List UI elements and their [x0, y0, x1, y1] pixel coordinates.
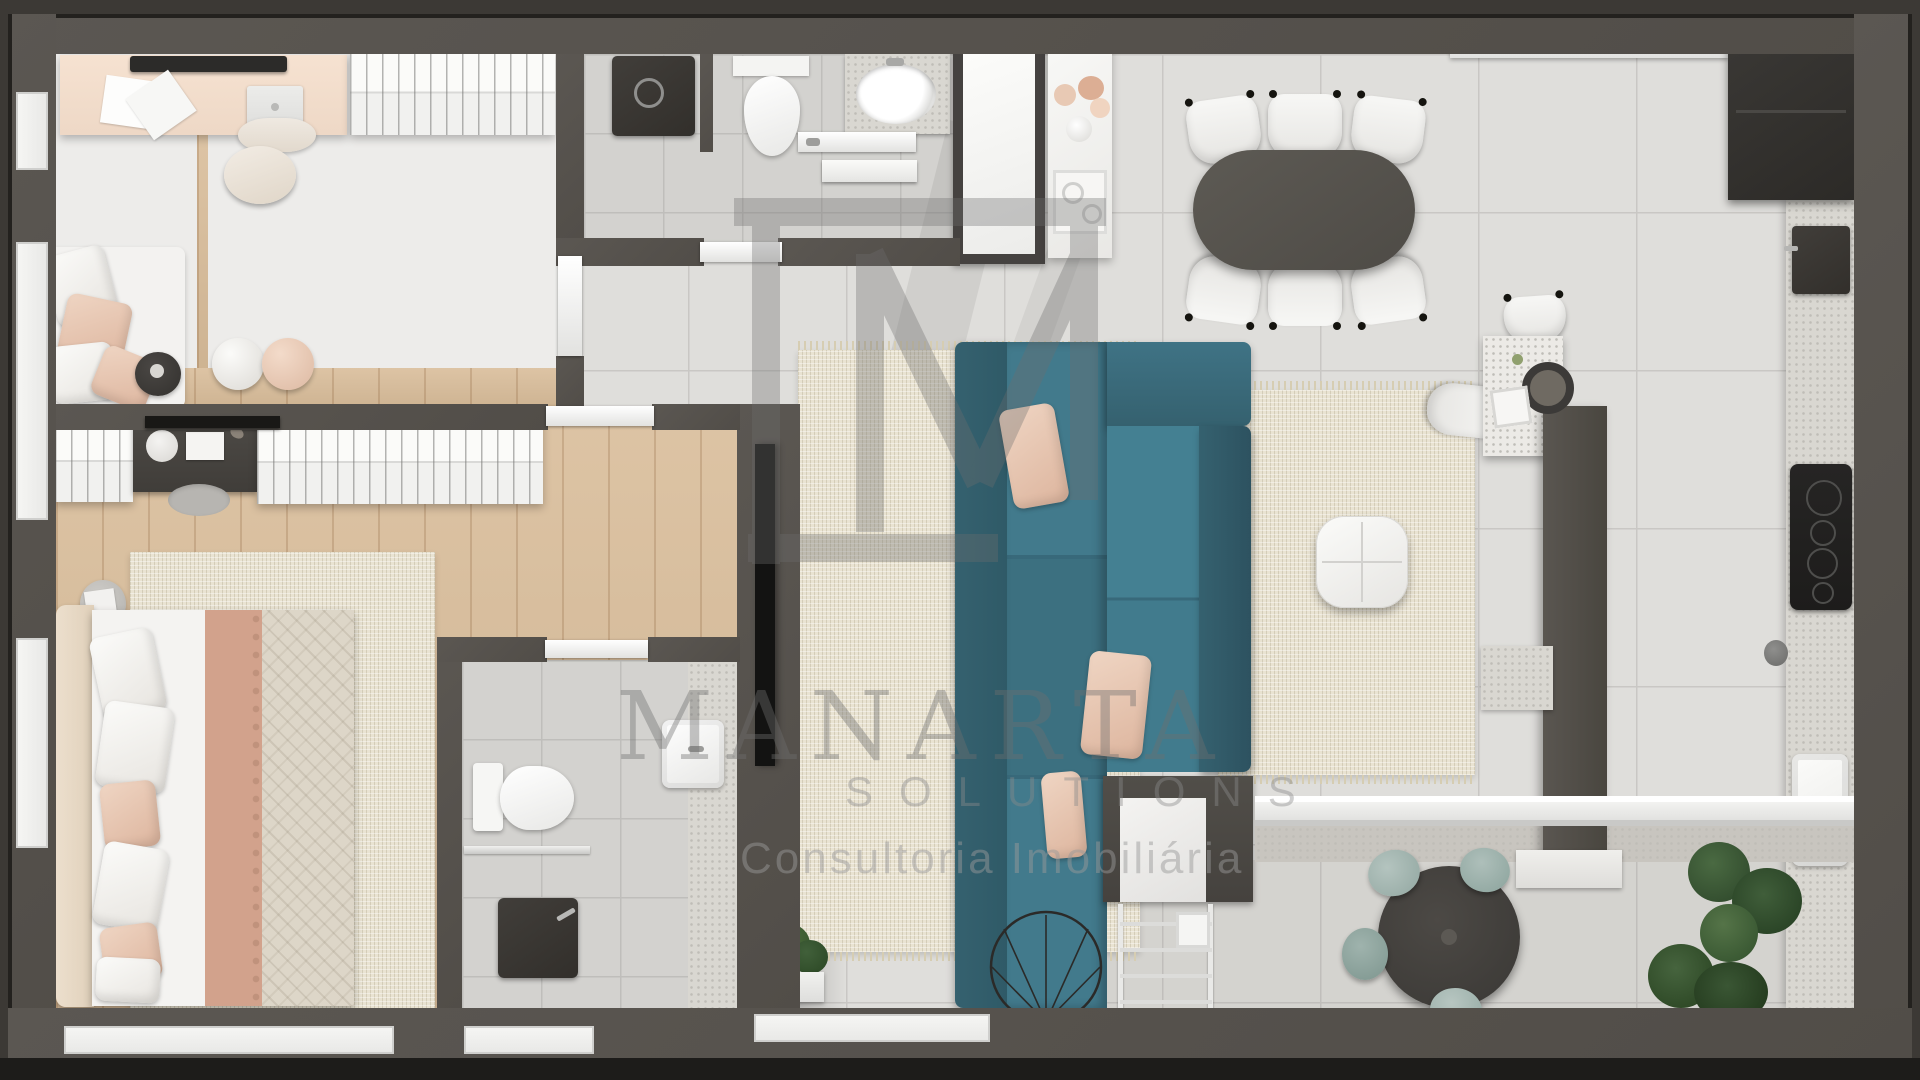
terrace-chair: [1342, 928, 1388, 980]
ladder-rack-box: [1176, 912, 1210, 948]
sofa-pillow: [1080, 650, 1153, 760]
window-master: [16, 638, 48, 848]
ladder-rack-rung: [1120, 948, 1212, 952]
prep-station-handle: [1784, 246, 1798, 251]
dining-chair: [1268, 94, 1342, 158]
bedroom1-wood-divider: [197, 135, 208, 368]
office-chair-seat: [224, 146, 296, 204]
ensuite-door-leaf: [545, 640, 648, 658]
cooktop-burner: [1807, 548, 1838, 579]
tall-cabinet-shelf-line: [1736, 110, 1846, 113]
bed-throw-blanket: [205, 610, 262, 1006]
flowers: [1054, 84, 1076, 106]
facade-shadow-strip: [0, 1058, 1920, 1080]
dining-chair: [1268, 262, 1342, 326]
window-bedroom1: [16, 92, 48, 170]
wardrobe-bedroom1: [350, 50, 555, 135]
sofa-pillow: [1040, 770, 1087, 859]
cooktop-burner: [1812, 582, 1834, 604]
toilet-tank: [733, 56, 809, 76]
wall-ensuite-top: [648, 637, 740, 662]
sofa-console-top: [1120, 798, 1206, 902]
shower-screen-track: [464, 846, 590, 854]
wardrobe-master-left: [55, 420, 133, 502]
pouf-white: [212, 338, 264, 390]
bed-pillow: [95, 956, 161, 1003]
rug-fringe: [1218, 775, 1475, 784]
round-rug: [168, 484, 230, 516]
wall-ensuite-top: [437, 637, 547, 662]
ladder-rack-rung: [1120, 1000, 1212, 1004]
serving-tray: [1490, 386, 1533, 429]
vanity-basin: [856, 64, 936, 124]
green-fruit: [1512, 354, 1523, 365]
kettle: [1764, 640, 1788, 666]
kitchen-prep-station: [1792, 226, 1850, 294]
entry-door-handle: [806, 138, 820, 146]
ensuite-faucet: [688, 746, 704, 752]
wall-bedroom1-right: [556, 356, 584, 408]
wall-bedroom1-right: [556, 54, 584, 256]
flowers: [1090, 98, 1110, 118]
plant-large: [1700, 904, 1758, 962]
ensuite-shower-tray: [498, 898, 578, 978]
floor-plan-render: MANARTA SOLUTIONS Consultoria Imobiliári…: [0, 0, 1920, 1080]
sofa-chaise-top: [1107, 342, 1251, 426]
wall-bedroom1-master: [652, 404, 740, 430]
bedroom1-door-leaf: [558, 256, 582, 356]
watermark-logo: [730, 182, 1110, 572]
flower-vase: [1066, 116, 1092, 142]
outer-wall-top: [8, 14, 1912, 54]
side-table-decor: [150, 364, 164, 378]
bed-headboard: [56, 605, 94, 1007]
wall-ensuite-left: [437, 637, 462, 1008]
master-door-leaf: [546, 406, 654, 426]
wall-bedroom1-master: [56, 404, 548, 430]
window-ensuite-bottom: [464, 1026, 594, 1054]
ladder-rack-rung: [1120, 974, 1212, 978]
bathroom-ledge: [822, 160, 917, 182]
ensuite-sink: [662, 720, 724, 788]
bathroom-shower-head: [634, 78, 664, 108]
kitchen-tall-cabinet: [1728, 38, 1854, 200]
laptop-logo: [271, 103, 279, 111]
flowers: [1078, 76, 1104, 100]
bed-pillow-blush: [99, 779, 162, 850]
balcony-door-track: [1255, 796, 1855, 826]
ensuite-toilet-tank: [473, 763, 503, 831]
cooktop-burner: [1806, 480, 1842, 516]
desk-monitor: [130, 56, 287, 72]
ensuite-toilet-bowl: [500, 766, 574, 830]
sliding-door-living: [754, 1014, 990, 1042]
pouf-blush: [262, 338, 314, 390]
dresser-plate: [146, 430, 178, 462]
sofa-back-right: [1199, 426, 1251, 772]
dresser-tray: [186, 432, 224, 460]
dining-table: [1193, 150, 1415, 270]
window-daybed: [16, 242, 48, 520]
island-side-shelf: [1481, 646, 1553, 710]
vanity-faucet: [886, 58, 904, 66]
bed-duvet: [258, 610, 354, 1006]
cooktop-burner: [1810, 520, 1836, 546]
wardrobe-master-right: [257, 420, 543, 504]
window-master-bottom: [64, 1026, 394, 1054]
outer-wall-right: [1854, 14, 1912, 1060]
outer-wall-left: [8, 14, 56, 1060]
bathroom-partition-wall: [700, 54, 713, 152]
ensuite-counter: [688, 662, 738, 1008]
island-end-cap: [1516, 850, 1622, 888]
terrace-table-center: [1441, 929, 1457, 945]
coffee-table-seam: [1322, 561, 1402, 563]
master-tv: [145, 416, 280, 428]
